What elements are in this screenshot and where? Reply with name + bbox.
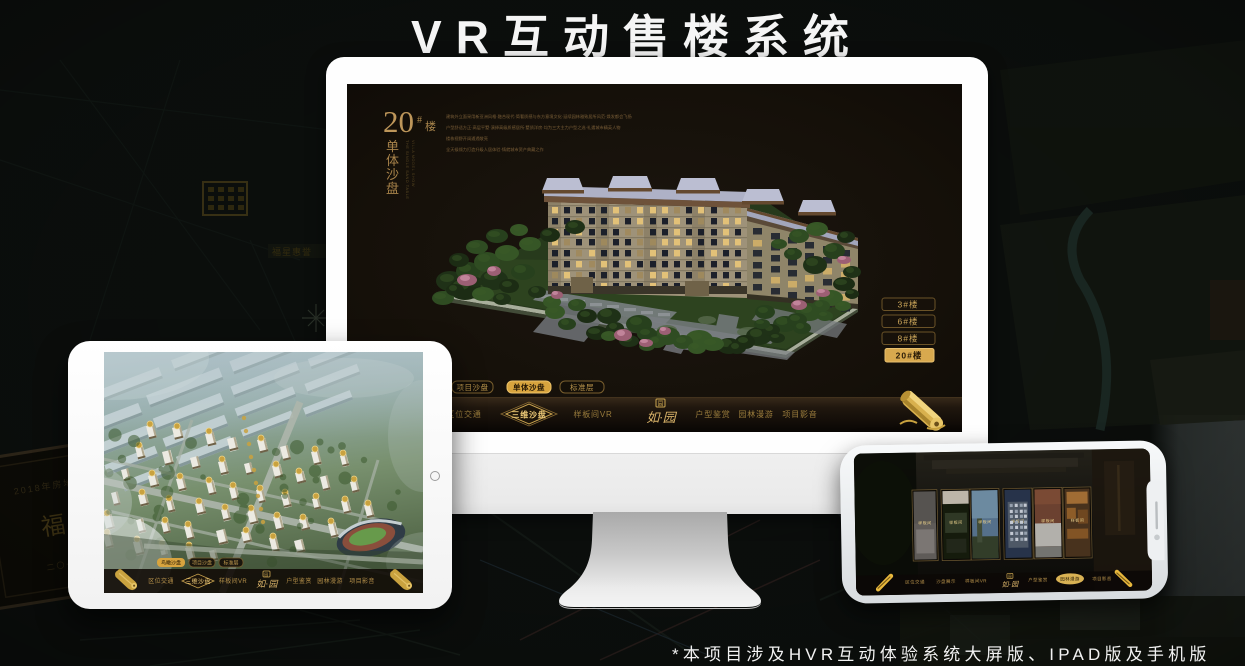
svg-text:样板间: 样板间 [918, 519, 932, 525]
svg-text:项目影音: 项目影音 [349, 577, 375, 585]
svg-text:户型舒适方正·高层平墅·演绎高级质感居所·墅质洋房·均为三大: 户型舒适方正·高层平墅·演绎高级质感居所·墅质洋房·均为三大主力户型之选·礼遇城… [446, 124, 620, 131]
svg-text:户型鉴赏: 户型鉴赏 [695, 409, 730, 419]
svg-text:样板间: 样板间 [1041, 517, 1055, 523]
svg-text:项目沙盘: 项目沙盘 [457, 382, 489, 392]
svg-text:THE SINGLE SAND TABLE: THE SINGLE SAND TABLE [405, 140, 409, 200]
svg-text:20#楼: 20#楼 [896, 351, 923, 361]
svg-text:如·园: 如·园 [646, 410, 677, 425]
svg-text:如·园: 如·园 [256, 579, 279, 589]
svg-text:单体沙盘: 单体沙盘 [513, 382, 545, 392]
svg-text:标准层: 标准层 [570, 382, 594, 392]
svg-text:样板间: 样板间 [1071, 517, 1085, 523]
svg-text:园林漫游: 园林漫游 [738, 409, 773, 419]
svg-text:单体沙盘: 单体沙盘 [386, 139, 399, 196]
svg-text:样板间VR: 样板间VR [573, 409, 612, 419]
svg-text:项目沙盘: 项目沙盘 [192, 560, 212, 567]
svg-text:园: 园 [264, 571, 268, 577]
svg-text:VILLA MODEL SHOW: VILLA MODEL SHOW [411, 140, 415, 187]
svg-text:样板间: 样板间 [949, 519, 963, 525]
svg-text:园林漫游: 园林漫游 [317, 577, 343, 585]
svg-text:样板间: 样板间 [978, 518, 992, 524]
svg-text:园: 园 [658, 401, 664, 408]
svg-text:样板间VR: 样板间VR [219, 577, 248, 585]
svg-text:如·园: 如·园 [1002, 581, 1020, 589]
svg-text:三维沙盘: 三维沙盘 [185, 577, 211, 585]
svg-text:#: # [417, 115, 422, 126]
svg-text:区位交通: 区位交通 [148, 577, 174, 585]
svg-text:楼: 楼 [425, 119, 436, 133]
svg-text:园: 园 [1008, 573, 1012, 578]
svg-text:20: 20 [383, 104, 414, 139]
svg-text:楼栋视野开阔通透敞亮: 楼栋视野开阔通透敞亮 [446, 135, 488, 142]
svg-text:全天候倾力打造升级人居体验·铸就城市资产典藏之作: 全天候倾力打造升级人居体验·铸就城市资产典藏之作 [446, 146, 545, 153]
svg-text:户型鉴赏: 户型鉴赏 [286, 577, 312, 585]
svg-text:8#楼: 8#楼 [898, 334, 919, 344]
svg-text:三维沙盘: 三维沙盘 [511, 410, 546, 420]
svg-text:鸟瞰沙盘: 鸟瞰沙盘 [161, 560, 181, 567]
svg-text:6#楼: 6#楼 [898, 317, 919, 327]
svg-text:标准层: 标准层 [223, 560, 238, 567]
svg-text:建筑外立面采用新亚洲风格·融合现代·简奢质感与东方意境文化·: 建筑外立面采用新亚洲风格·融合现代·简奢质感与东方意境文化·延续园林雅致居所风范… [446, 113, 632, 120]
svg-text:3#楼: 3#楼 [898, 300, 919, 310]
svg-text:项目影音: 项目影音 [782, 409, 817, 419]
